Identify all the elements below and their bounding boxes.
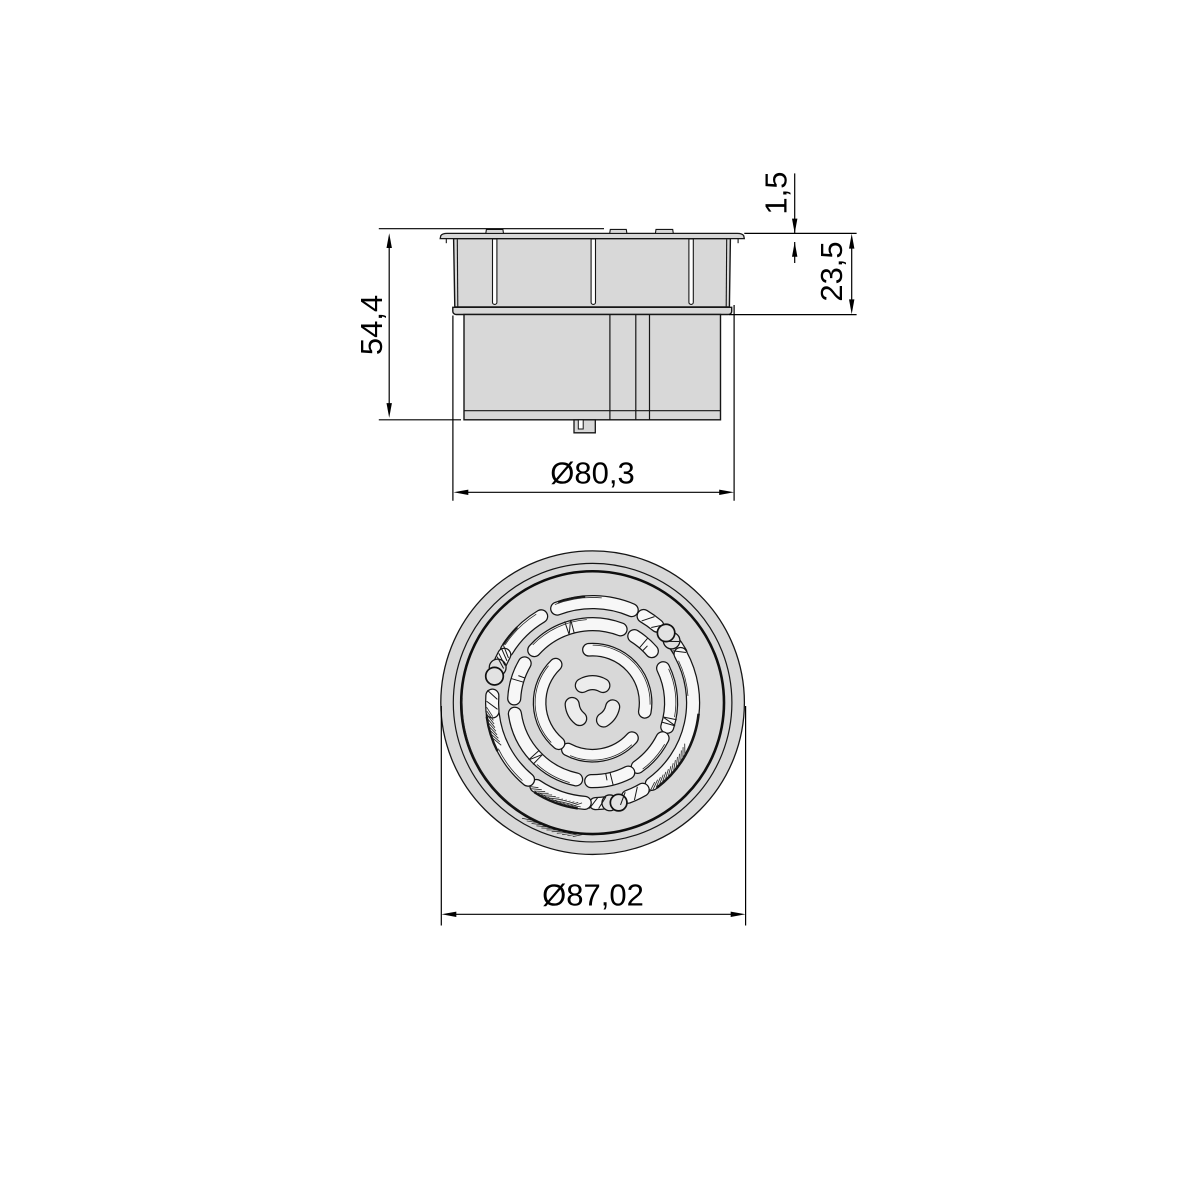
svg-text:Ø87,02: Ø87,02: [542, 878, 644, 913]
svg-text:Ø80,3: Ø80,3: [550, 456, 634, 491]
svg-text:54,4: 54,4: [354, 295, 389, 355]
svg-text:1,5: 1,5: [759, 171, 794, 214]
svg-text:23,5: 23,5: [814, 241, 849, 301]
